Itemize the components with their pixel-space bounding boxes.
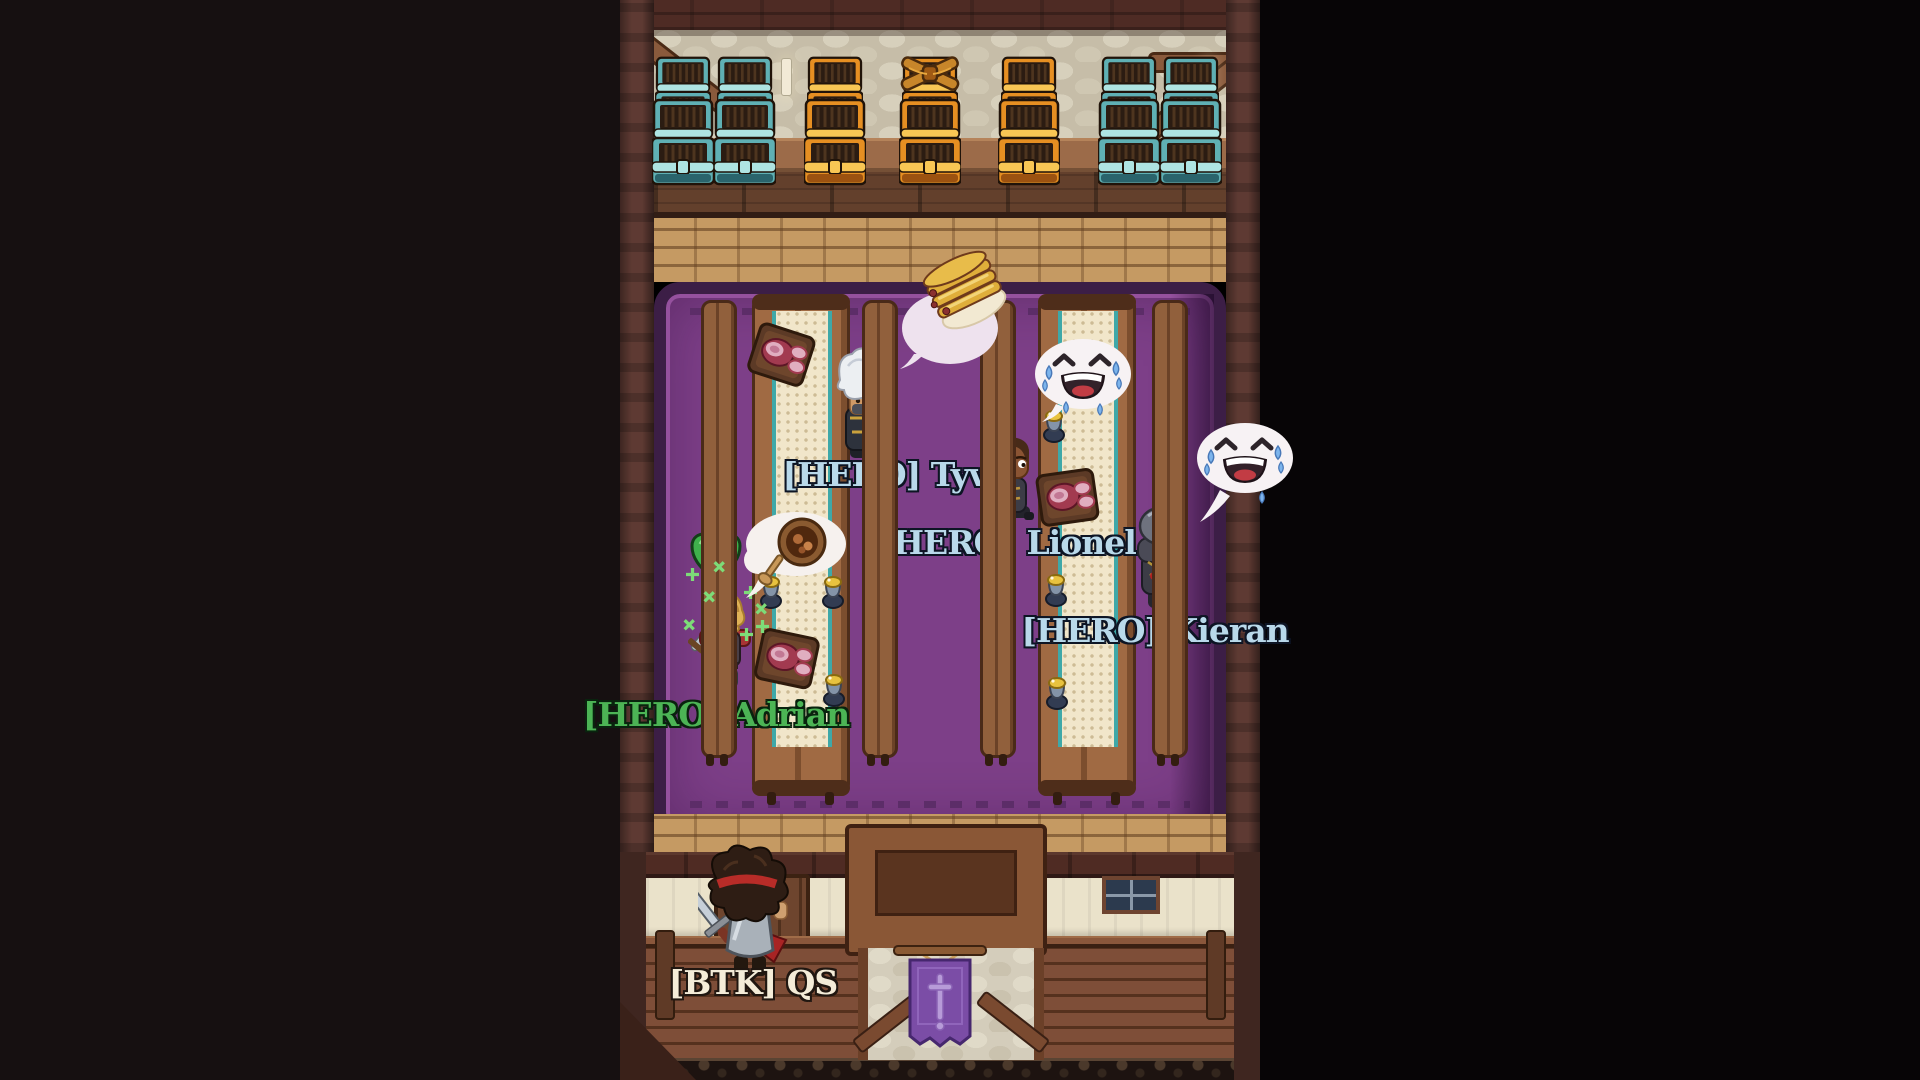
speech-bubble-joy-tears-emoji-icon bbox=[1192, 418, 1304, 534]
storage-chest[interactable] bbox=[714, 98, 776, 190]
speech-bubble-joy-tears-emoji-icon bbox=[1030, 334, 1142, 450]
table-end-cap bbox=[1038, 294, 1136, 310]
heal-sparkle-icon bbox=[756, 618, 769, 637]
goblet-icon bbox=[1045, 673, 1069, 715]
porch-post-right bbox=[1206, 930, 1226, 1020]
bench bbox=[862, 300, 898, 758]
storage-chest[interactable] bbox=[998, 98, 1060, 190]
facade-edge-right bbox=[1234, 852, 1260, 1080]
goblet-icon bbox=[822, 670, 846, 712]
porch-recess bbox=[875, 850, 1017, 916]
table-end-cap bbox=[752, 780, 850, 796]
bench bbox=[701, 300, 737, 758]
heal-sparkle-icon bbox=[740, 626, 753, 645]
speech-bubble-pancake-stack-icon bbox=[896, 236, 1018, 374]
guild-banner bbox=[892, 942, 988, 1062]
table-end-cap bbox=[1038, 780, 1136, 796]
storage-chest[interactable] bbox=[1098, 98, 1160, 190]
porch-header bbox=[845, 824, 1047, 956]
ham-cutting-board-icon bbox=[1030, 463, 1110, 538]
storage-chest[interactable] bbox=[1160, 98, 1222, 190]
bench bbox=[1152, 300, 1188, 758]
storage-chest[interactable] bbox=[899, 98, 961, 190]
nametag-qs: [BTK] QS bbox=[669, 966, 837, 999]
bow-icon bbox=[895, 48, 965, 104]
letterbox-left bbox=[0, 0, 620, 1080]
game-viewport: [HERO] Tyva [HERO] Lionel [HERO] Kie bbox=[0, 0, 1920, 1080]
goblet-icon bbox=[1044, 570, 1068, 612]
candle-icon bbox=[781, 58, 792, 96]
top-wall bbox=[620, 0, 1260, 30]
window bbox=[1102, 876, 1160, 914]
window-bar-icon bbox=[1130, 880, 1133, 910]
storage-chest[interactable] bbox=[804, 98, 866, 190]
table-end-cap bbox=[752, 294, 850, 310]
carpet-dash-row bbox=[690, 801, 1190, 808]
letterbox-right bbox=[1260, 0, 1920, 1080]
storage-chest[interactable] bbox=[652, 98, 714, 190]
speech-bubble-stew-bowl-icon bbox=[740, 506, 856, 606]
heal-sparkle-icon bbox=[686, 566, 699, 585]
